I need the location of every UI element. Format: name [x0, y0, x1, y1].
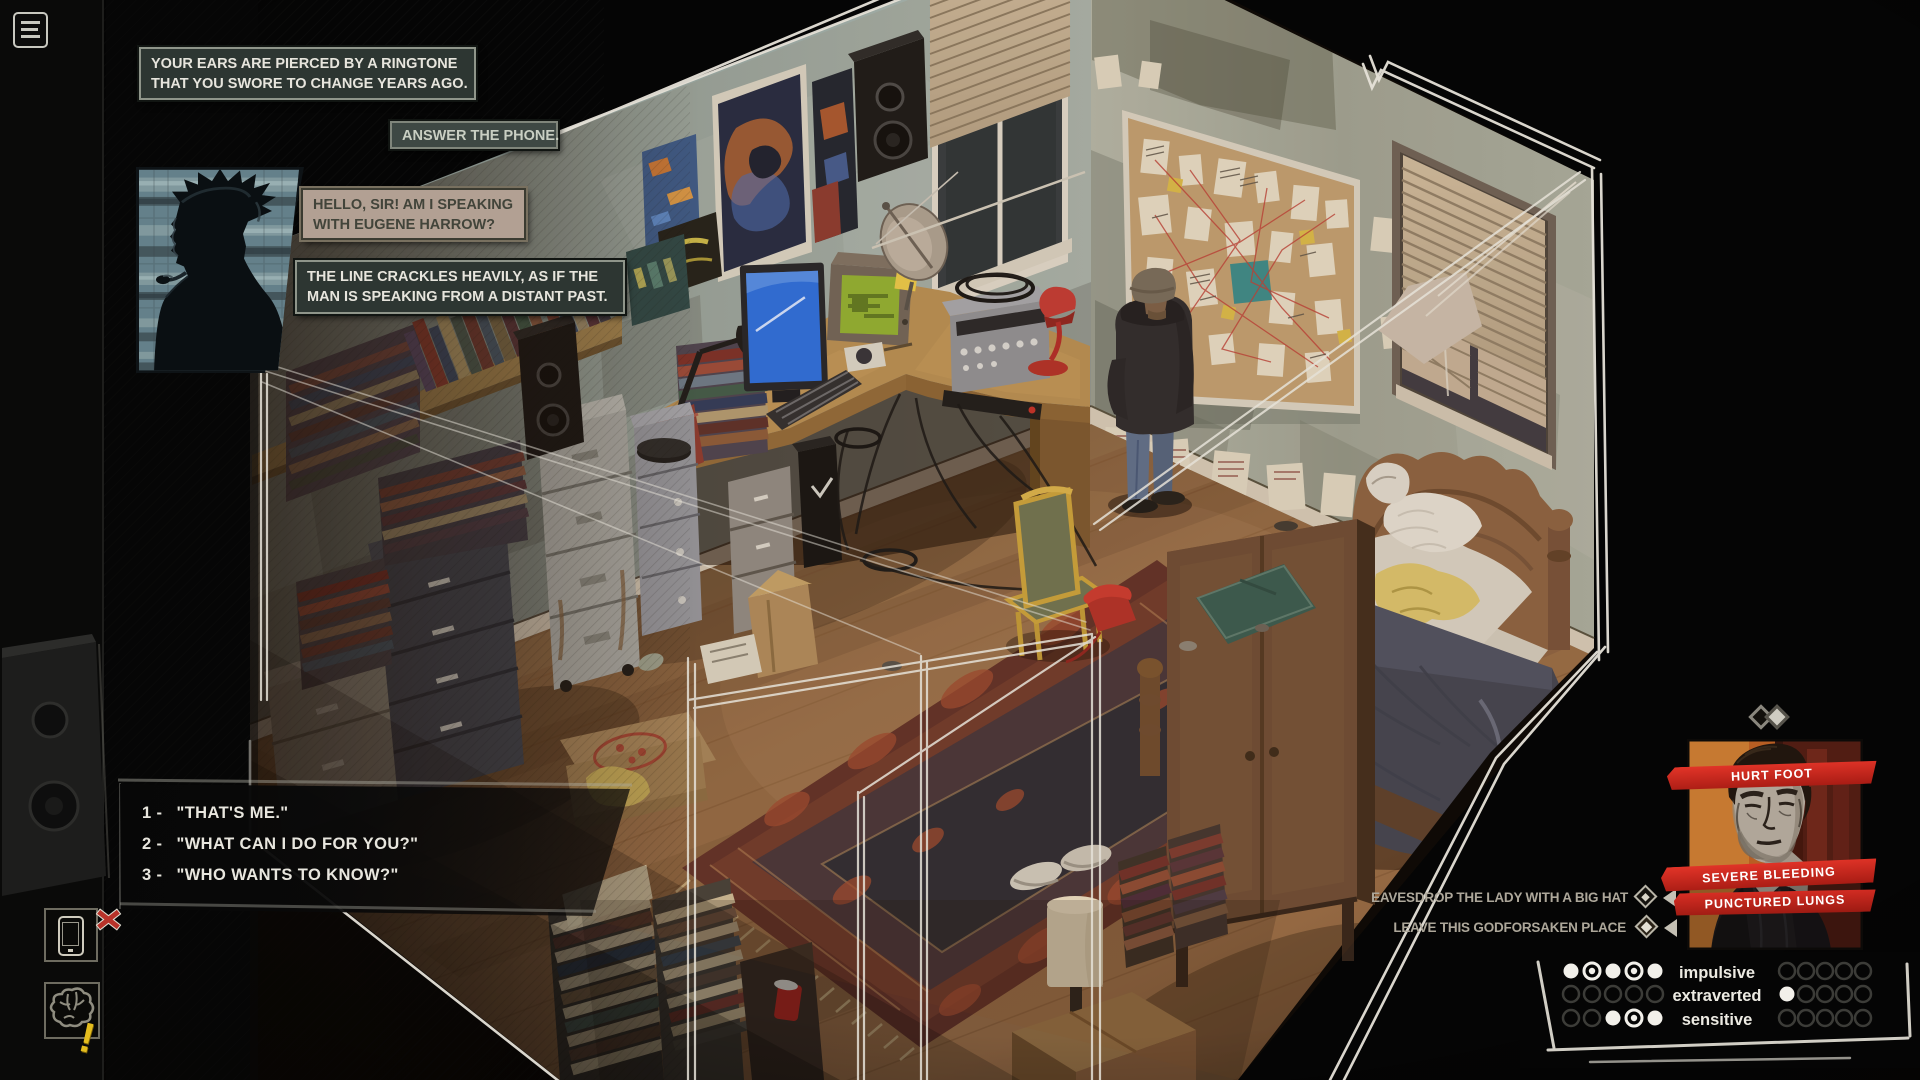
- svg-text:extraverted: extraverted: [1673, 987, 1762, 1005]
- svg-text:sensitive: sensitive: [1682, 1011, 1753, 1029]
- svg-text:impulsive: impulsive: [1679, 964, 1755, 982]
